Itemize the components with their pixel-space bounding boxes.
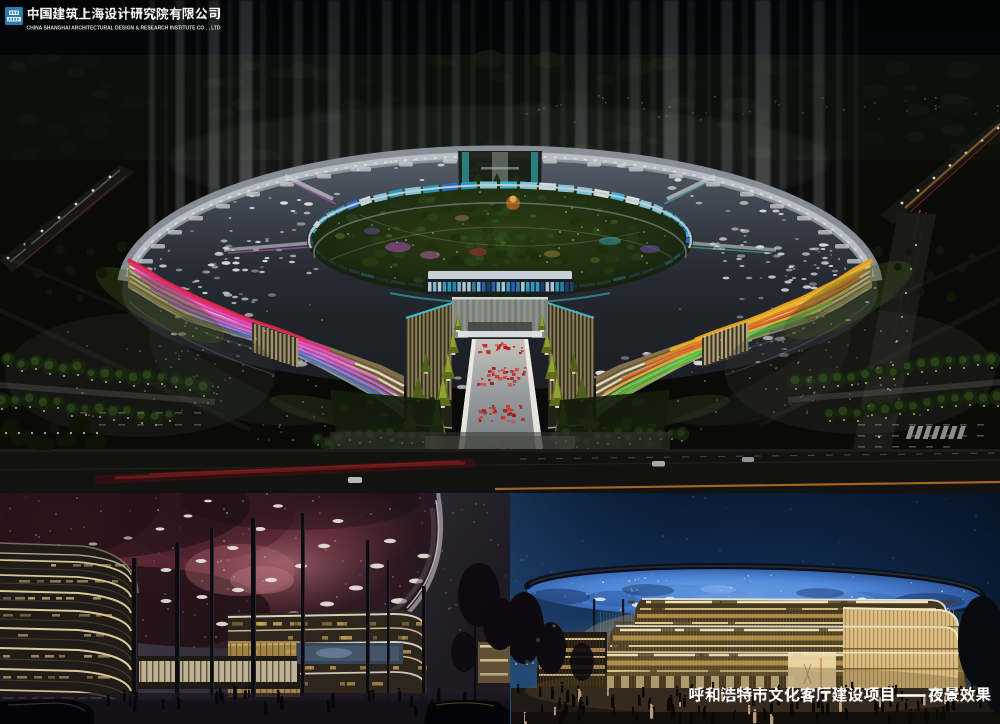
svg-text:CHINA SHANGHAI ARCHITECTURAL D: CHINA SHANGHAI ARCHITECTURAL DESIGN & RE… — [27, 26, 221, 32]
